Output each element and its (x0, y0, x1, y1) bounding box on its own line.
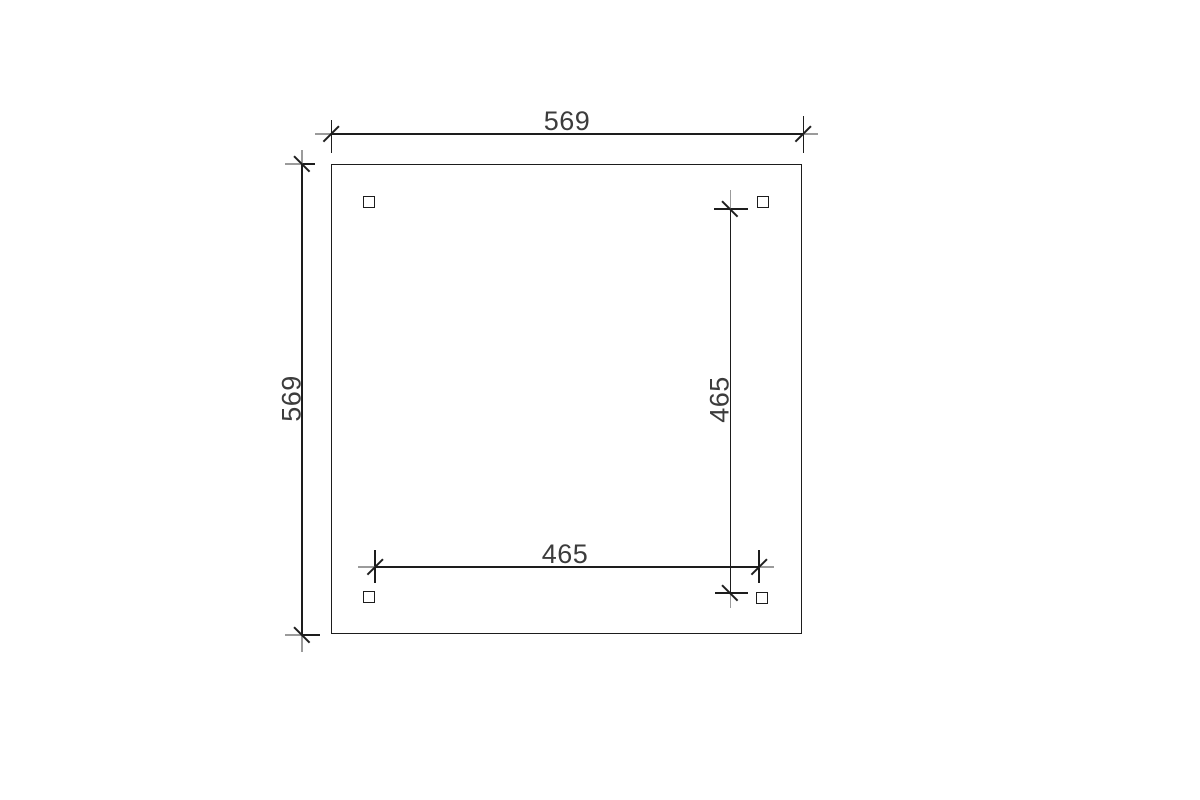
dim-post-span-width-overshoot-right (759, 566, 774, 567)
dim-post-span-depth-overshoot-top (730, 190, 731, 209)
dim-overall-width-extension-left (331, 120, 332, 153)
post-top-left (363, 196, 375, 208)
dim-overall-width-overshoot-right (803, 133, 818, 134)
dim-overall-depth-label: 569 (279, 359, 306, 439)
drawing-canvas: 569 569 465 465 (0, 0, 1200, 800)
dim-post-span-depth-label: 465 (707, 360, 734, 440)
dim-post-span-width-label: 465 (525, 541, 605, 568)
post-bottom-right (756, 592, 768, 604)
dim-overall-width-label: 569 (527, 108, 607, 135)
post-top-right (757, 196, 769, 208)
dim-overall-depth-extension-top-overshoot (285, 163, 302, 164)
dim-overall-depth-overshoot-bottom (301, 635, 302, 652)
post-bottom-left (363, 591, 375, 603)
dim-overall-depth-extension-bottom-overshoot (285, 634, 302, 635)
